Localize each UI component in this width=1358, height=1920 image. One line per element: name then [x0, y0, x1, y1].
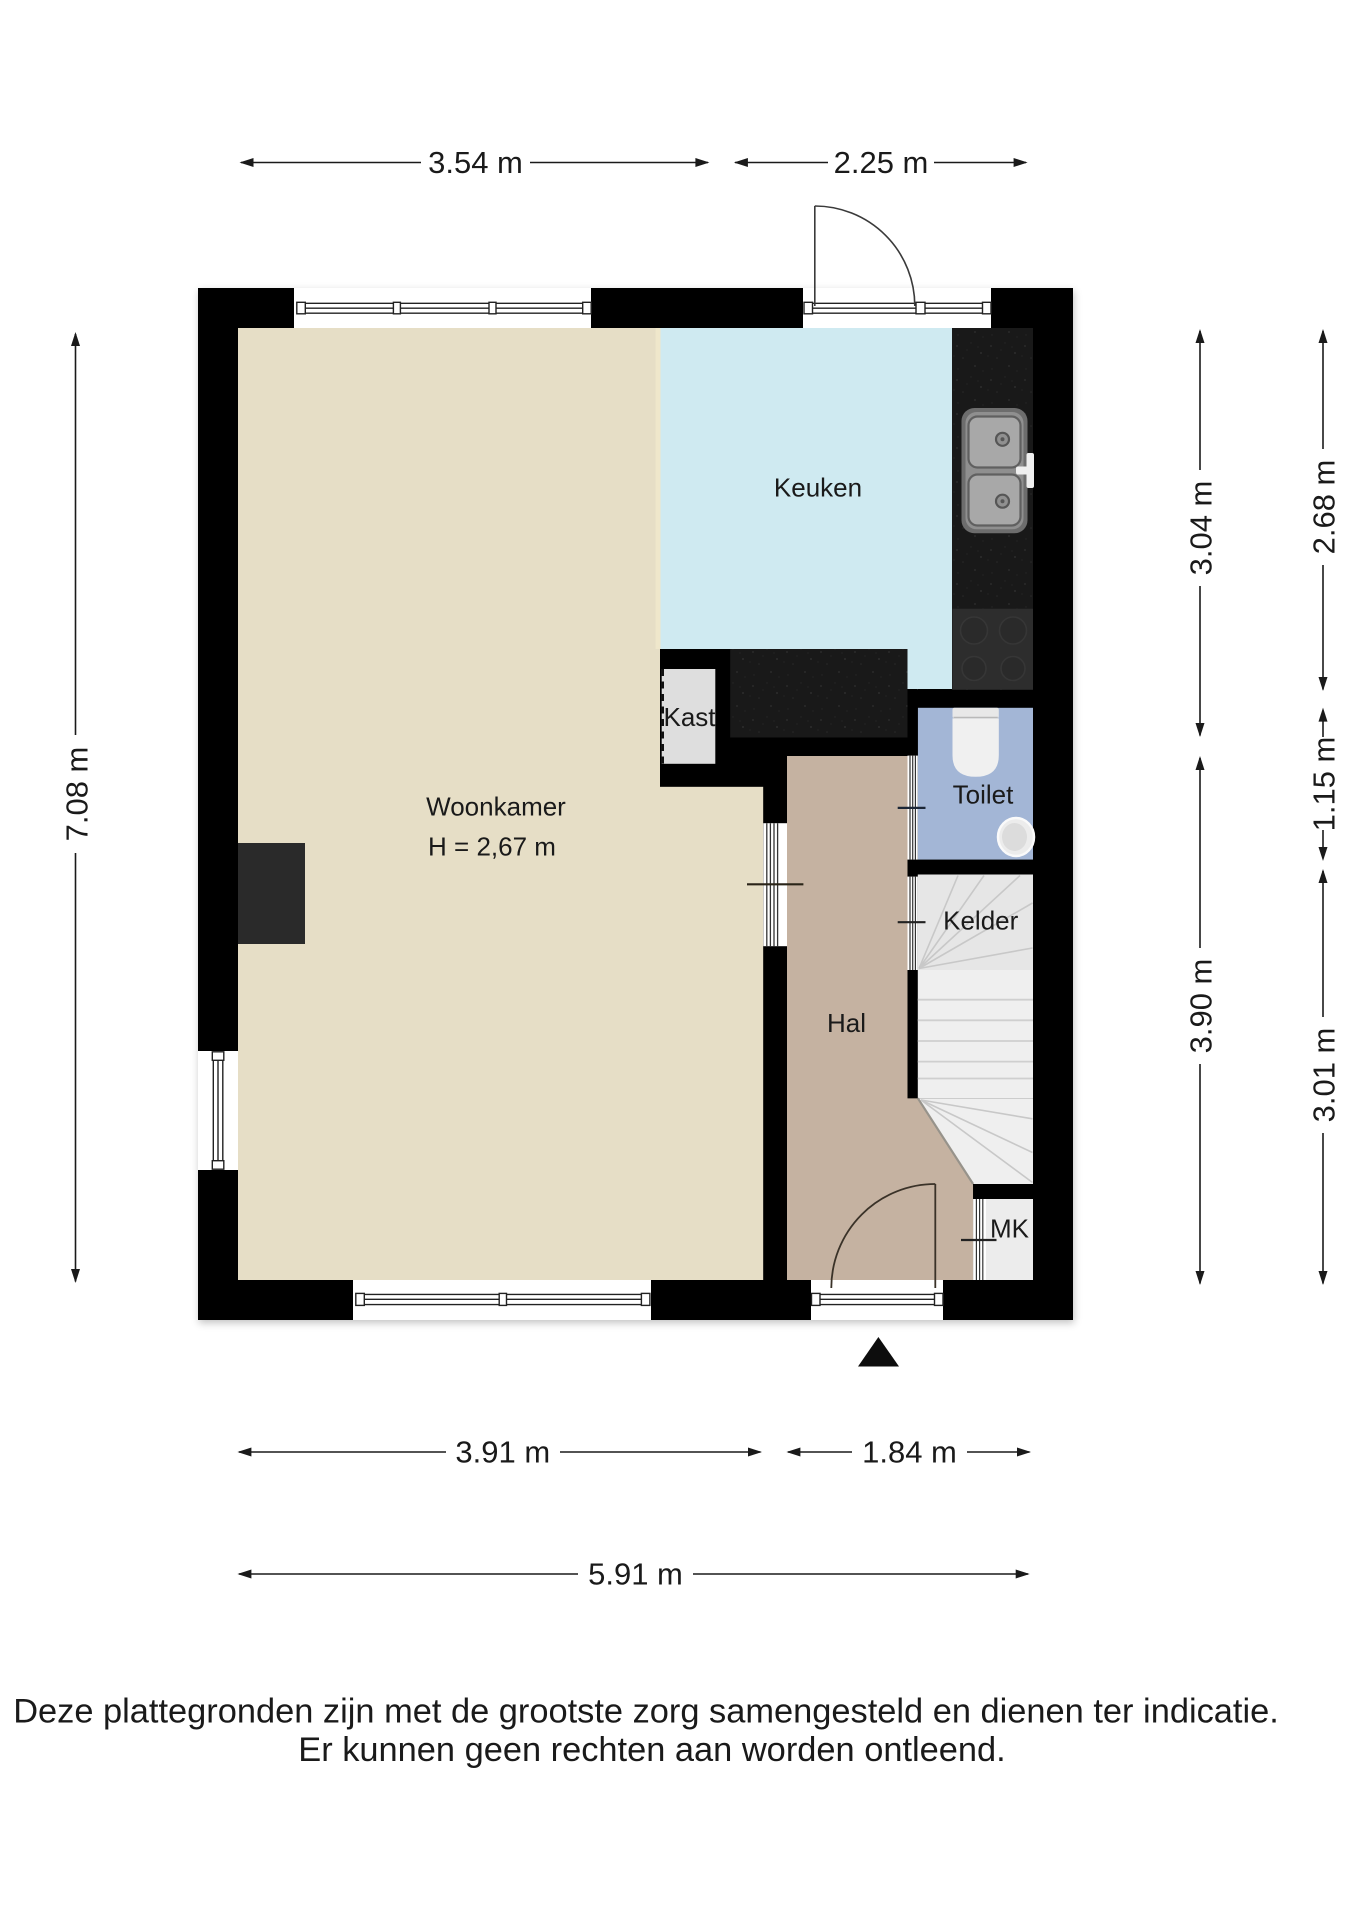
svg-text:3.01 m: 3.01 m [1307, 1028, 1342, 1123]
svg-text:1.15 m: 1.15 m [1307, 737, 1342, 832]
svg-text:3.04 m: 3.04 m [1184, 481, 1219, 576]
svg-text:7.08 m: 7.08 m [60, 747, 95, 842]
svg-text:1.84 m: 1.84 m [862, 1435, 957, 1470]
svg-text:3.91 m: 3.91 m [455, 1435, 550, 1470]
svg-text:5.91 m: 5.91 m [588, 1557, 683, 1592]
svg-text:Woonkamer: Woonkamer [426, 792, 566, 822]
svg-text:3.90 m: 3.90 m [1184, 959, 1219, 1054]
svg-text:2.25 m: 2.25 m [834, 145, 929, 180]
svg-text:Keuken: Keuken [774, 473, 862, 503]
svg-text:Er kunnen geen rechten aan wor: Er kunnen geen rechten aan worden ontlee… [298, 1731, 1005, 1769]
svg-text:3.54 m: 3.54 m [428, 145, 523, 180]
svg-text:Kelder: Kelder [943, 905, 1018, 935]
svg-text:Kast: Kast [663, 702, 716, 732]
svg-text:Hal: Hal [827, 1008, 866, 1038]
svg-text:2.68 m: 2.68 m [1307, 460, 1342, 555]
svg-text:H = 2,67 m: H = 2,67 m [428, 831, 556, 861]
svg-text:Deze plattegronden zijn met de: Deze plattegronden zijn met de grootste … [13, 1693, 1279, 1731]
svg-text:Toilet: Toilet [953, 779, 1014, 809]
svg-text:MK: MK [990, 1214, 1030, 1244]
